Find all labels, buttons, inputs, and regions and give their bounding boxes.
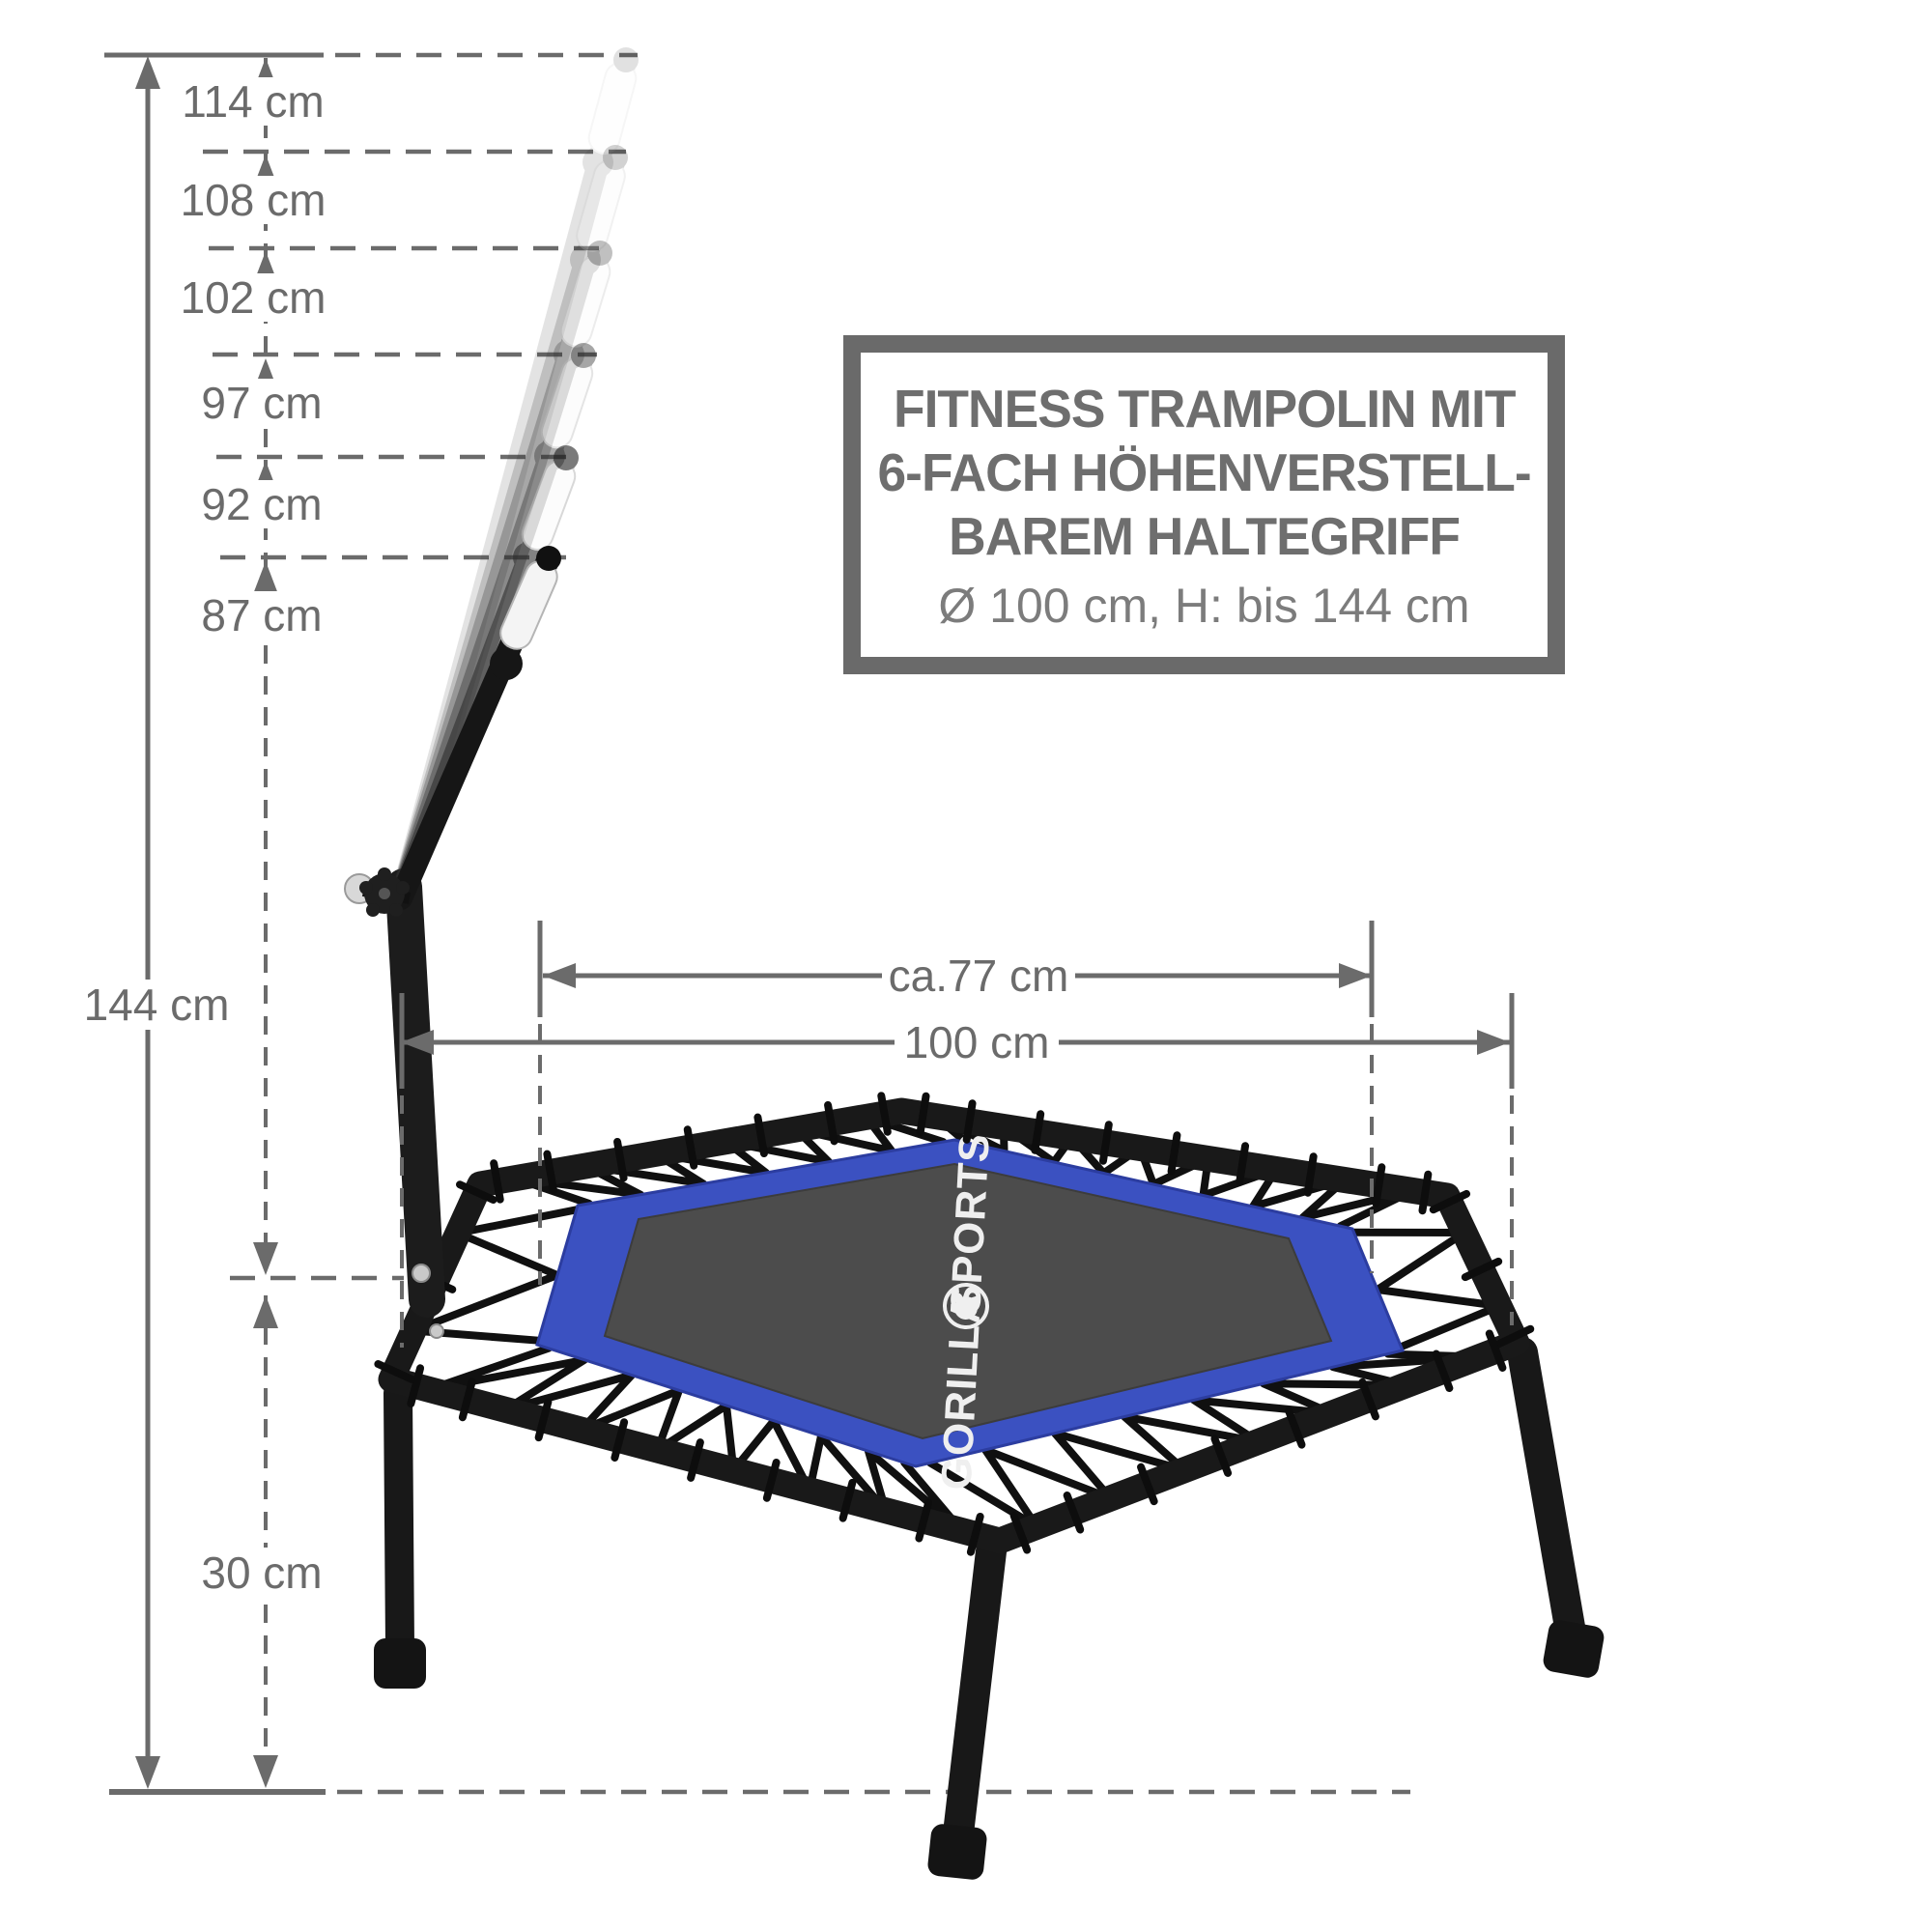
title-line-2: 6-FACH HÖHENVERSTELL- (877, 440, 1530, 504)
pole-bolt (412, 1264, 430, 1282)
handle-pole (404, 887, 427, 1299)
arrow-down-icon (253, 1755, 278, 1788)
total-height-label: 144 cm (84, 980, 230, 1030)
height-label-92: 92 cm (201, 479, 322, 529)
height-label-114: 114 cm (182, 76, 324, 127)
title-line-1: FITNESS TRAMPOLIN MIT (894, 377, 1516, 440)
frame-height-label: 30 cm (201, 1548, 322, 1598)
title-box: FITNESS TRAMPOLIN MIT 6-FACH HÖHENVERSTE… (843, 335, 1565, 674)
arrow-right-icon (1477, 1030, 1510, 1055)
diagram-canvas: 114 cm 108 cm 102 cm 97 cm 92 cm 87 cm 1… (0, 0, 1932, 1932)
left-leg (398, 1393, 400, 1648)
front-leg (958, 1551, 991, 1833)
handlebar-positions (401, 47, 639, 898)
mat-width-label: ca.77 cm (889, 951, 1069, 1001)
frame-width-label: 100 cm (904, 1017, 1050, 1067)
arrow-up-icon (135, 56, 160, 89)
front-foot-cap (926, 1823, 987, 1881)
left-foot-cap (374, 1638, 426, 1689)
logo-word-sports: SPORTS (942, 1132, 999, 1315)
height-label-87: 87 cm (201, 590, 322, 640)
arrow-up-icon (253, 1295, 278, 1328)
arrow-up-icon (253, 561, 278, 594)
dimension-annotations-back: 114 cm 108 cm 102 cm 97 cm 92 cm 87 cm 1… (84, 55, 1410, 1792)
arrow-down-icon (135, 1756, 160, 1789)
right-foot-cap (1542, 1618, 1605, 1679)
arrow-right-icon (1339, 963, 1372, 988)
arrow-left-icon (543, 963, 576, 988)
right-leg (1522, 1352, 1571, 1633)
height-label-108: 108 cm (181, 175, 327, 225)
title-line-3: BAREM HALTEGRIFF (949, 504, 1460, 568)
arrow-down-icon (253, 1242, 278, 1275)
product-dimension-diagram: 114 cm 108 cm 102 cm 97 cm 92 cm 87 cm 1… (0, 0, 1932, 1932)
frame-bolt (430, 1324, 443, 1338)
height-label-102: 102 cm (181, 272, 327, 323)
height-label-97: 97 cm (201, 378, 322, 428)
title-subtitle: Ø 100 cm, H: bis 144 cm (938, 578, 1469, 634)
